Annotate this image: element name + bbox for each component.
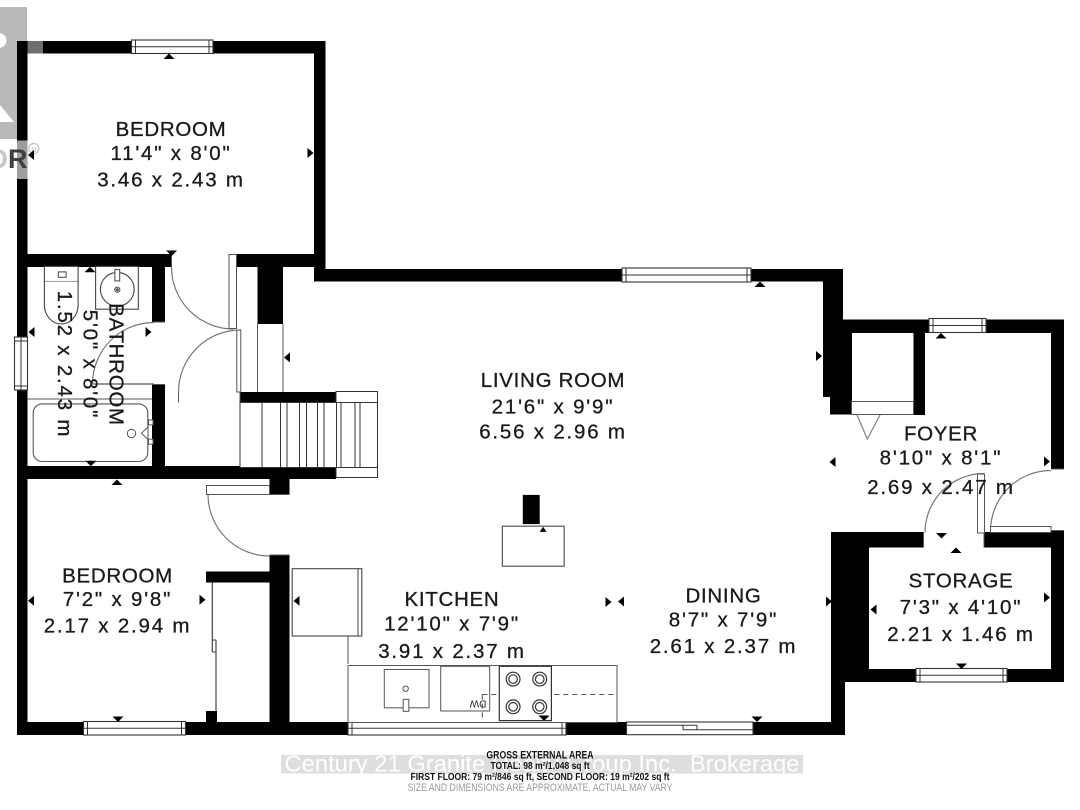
svg-text:2.61 x 2.37 m: 2.61 x 2.37 m xyxy=(650,635,798,658)
svg-text:2.17 x 2.94 m: 2.17 x 2.94 m xyxy=(44,615,192,638)
svg-text:7'3" x 4'10": 7'3" x 4'10" xyxy=(900,596,1023,619)
svg-text:SIZE AND DIMENSIONS ARE APPROX: SIZE AND DIMENSIONS ARE APPROXIMATE, ACT… xyxy=(408,782,673,794)
svg-text:21'6" x 9'9": 21'6" x 9'9" xyxy=(492,396,615,419)
svg-text:7'2" x 9'8": 7'2" x 9'8" xyxy=(63,588,172,611)
svg-text:3.91 x 2.37 m: 3.91 x 2.37 m xyxy=(378,640,526,663)
svg-text:FOYER: FOYER xyxy=(904,422,978,445)
svg-text:DW: DW xyxy=(469,698,486,709)
svg-text:BATHROOM: BATHROOM xyxy=(104,303,127,426)
svg-text:3.46 x 2.43 m: 3.46 x 2.43 m xyxy=(97,169,245,192)
svg-text:FIRST FLOOR: 79 m²/846 sq ft,: FIRST FLOOR: 79 m²/846 sq ft, SECOND FLO… xyxy=(411,771,671,783)
svg-text:KITCHEN: KITCHEN xyxy=(405,588,500,611)
svg-text:DINING: DINING xyxy=(686,585,762,608)
svg-text:BEDROOM: BEDROOM xyxy=(62,565,173,588)
svg-text:R: R xyxy=(8,144,28,174)
svg-text:2.21 x 1.46 m: 2.21 x 1.46 m xyxy=(887,623,1035,646)
svg-text:5'0" x 8'0": 5'0" x 8'0" xyxy=(79,310,102,419)
svg-text:11'4" x 8'0": 11'4" x 8'0" xyxy=(110,142,231,165)
svg-text:O: O xyxy=(0,144,8,174)
svg-text:2.69 x 2.47 m: 2.69 x 2.47 m xyxy=(867,476,1015,499)
svg-text:12'10" x 7'9": 12'10" x 7'9" xyxy=(384,612,520,635)
svg-text:LIVING ROOM: LIVING ROOM xyxy=(481,369,625,392)
svg-text:STORAGE: STORAGE xyxy=(909,569,1014,592)
svg-text:6.56 x 2.96 m: 6.56 x 2.96 m xyxy=(479,421,627,444)
svg-text:BEDROOM: BEDROOM xyxy=(116,118,227,141)
svg-text:8'10" x 8'1": 8'10" x 8'1" xyxy=(880,447,1003,470)
svg-text:1.52 x 2.43 m: 1.52 x 2.43 m xyxy=(53,291,76,439)
svg-text:8'7" x 7'9": 8'7" x 7'9" xyxy=(669,608,778,631)
